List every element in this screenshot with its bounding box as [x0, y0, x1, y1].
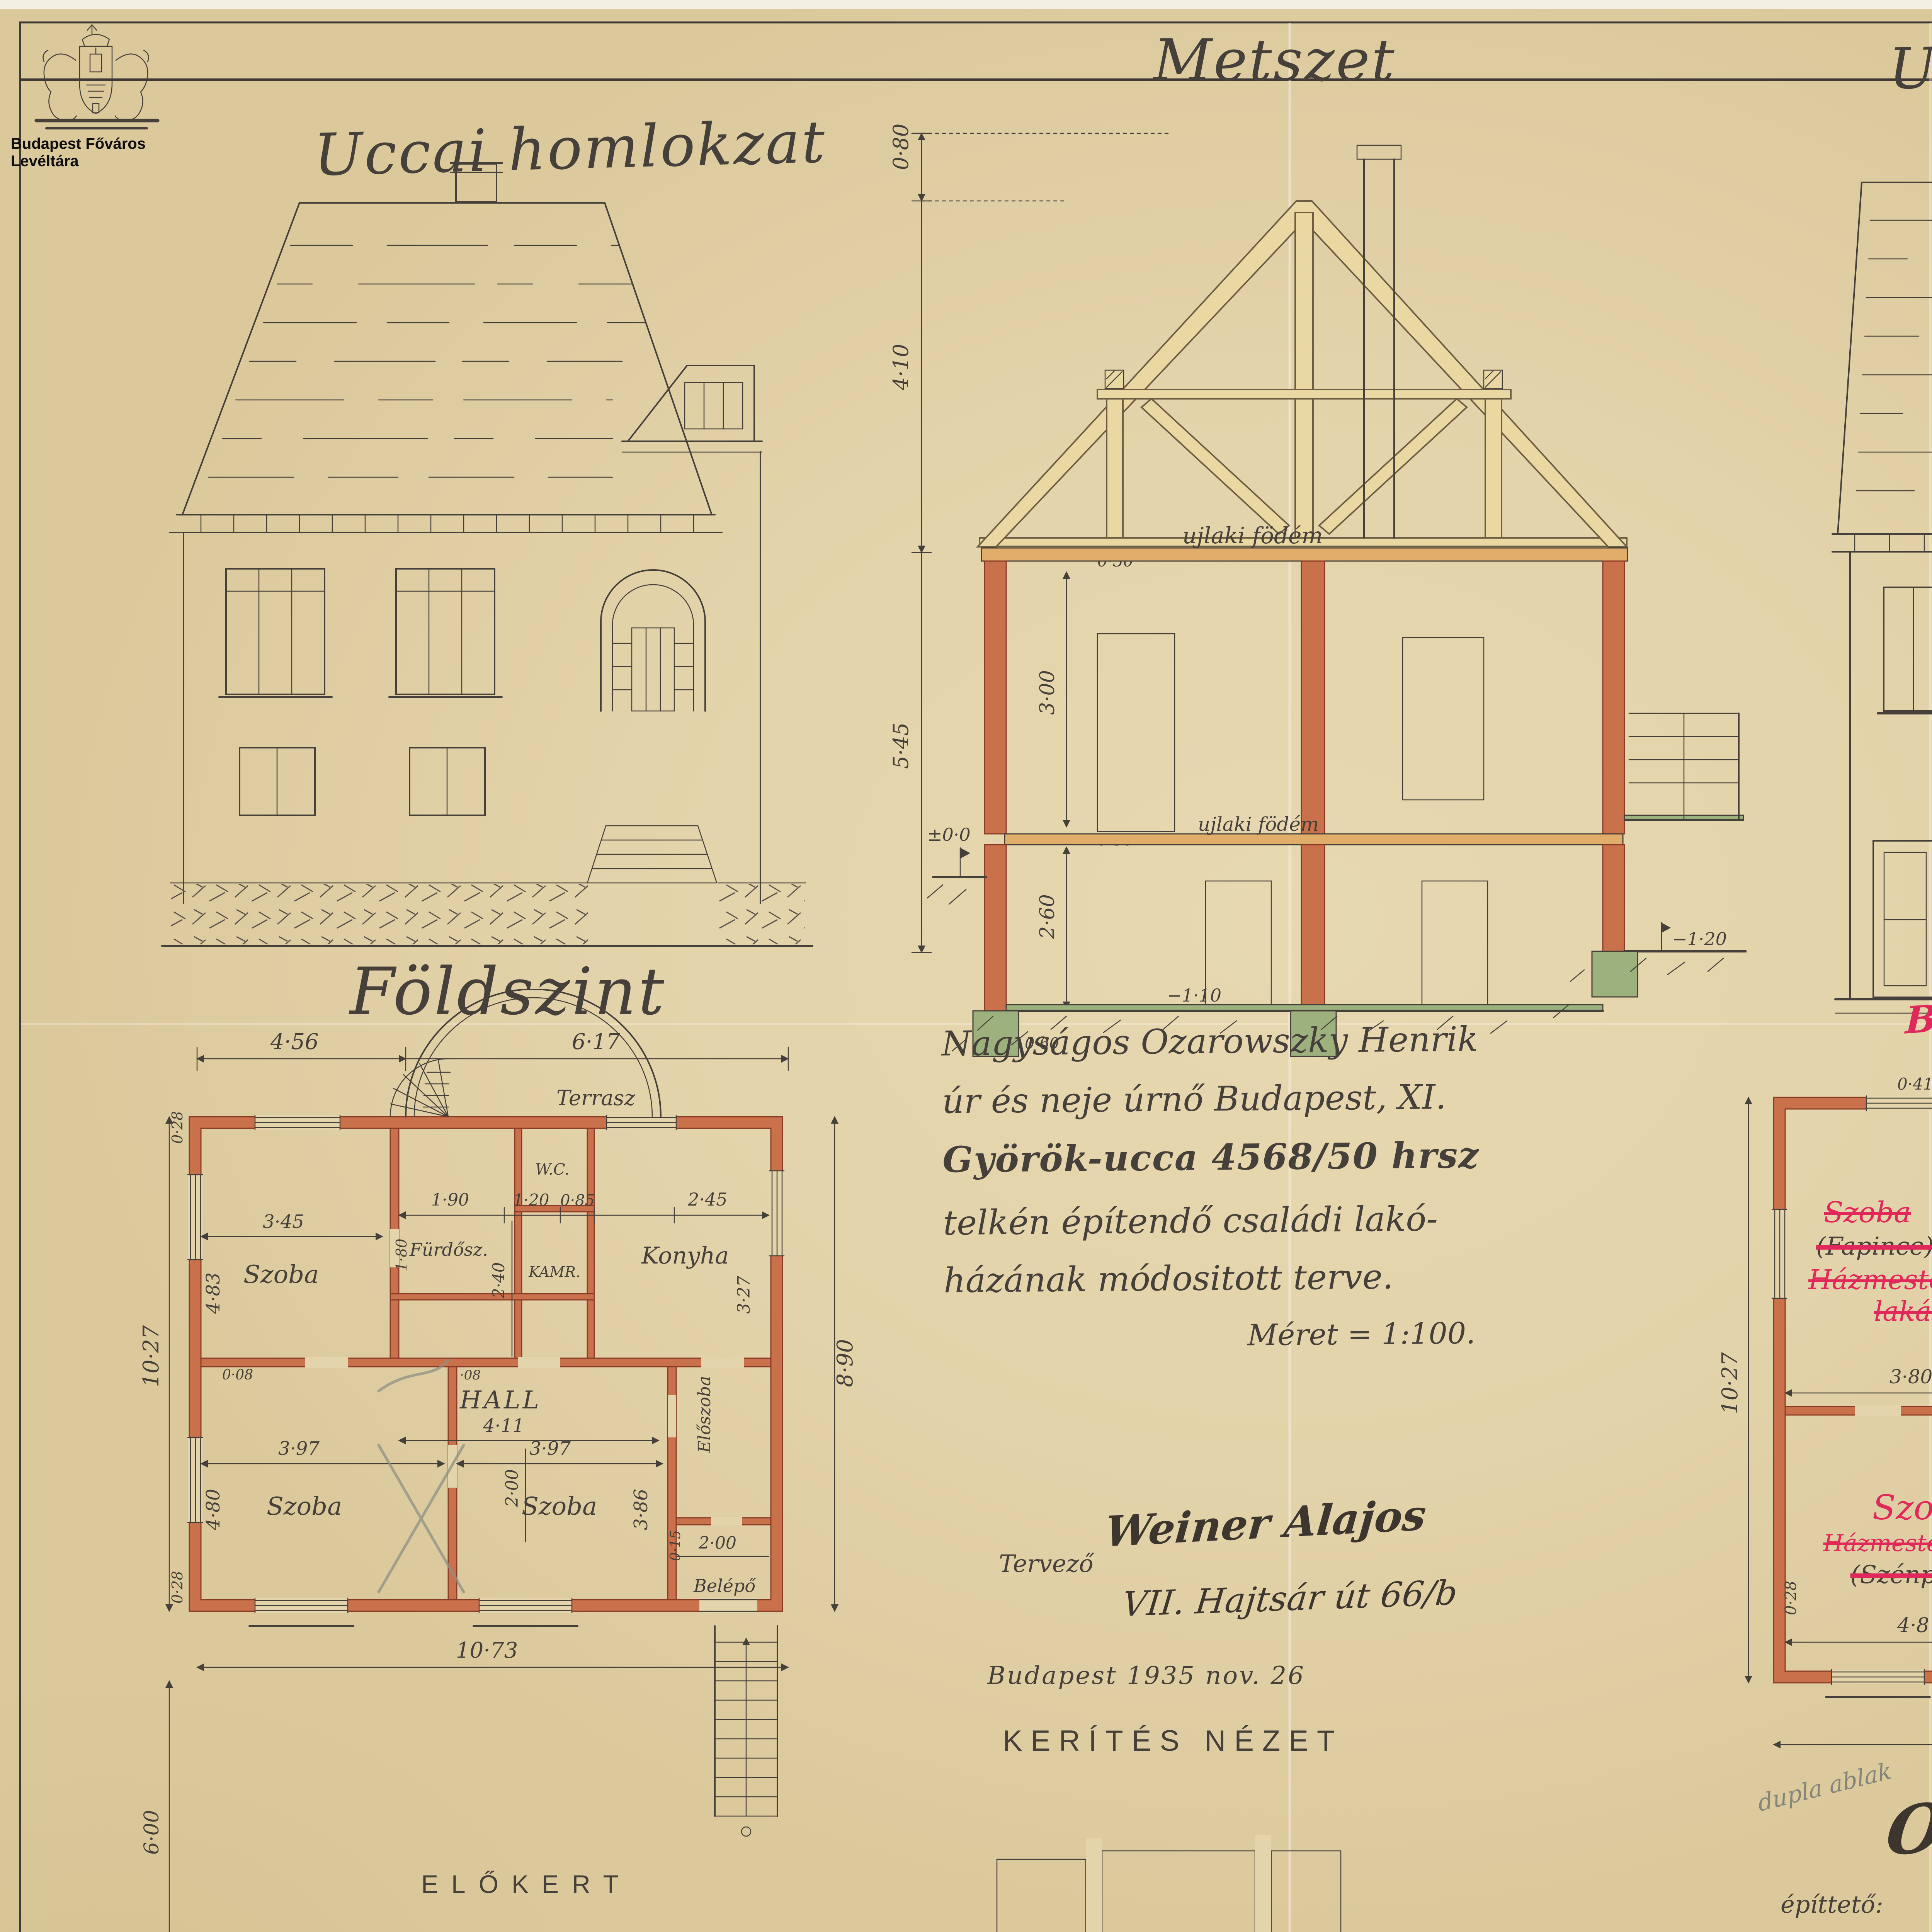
fence-drawing	[958, 1793, 1368, 1932]
street-arched-entry	[587, 570, 717, 883]
room-vestibule: Előszoba	[695, 1376, 714, 1453]
gf-dim-200-entry: 2·00	[698, 1533, 736, 1553]
fence-title: KERÍTÉS NÉZET	[1003, 1724, 1343, 1758]
project-line-4: telkén építendő családi lakó-	[943, 1196, 1778, 1243]
project-scale: Méret = 1:100.	[944, 1313, 1779, 1355]
gf-dim-190: 1·90	[431, 1190, 469, 1210]
gf-dim-028b: 0·28	[169, 1571, 186, 1604]
gf-dim-245: 2·45	[687, 1189, 727, 1210]
street-roof	[170, 163, 722, 532]
room-kitchen: Konyha	[641, 1242, 729, 1269]
room-pantry: KAMR.	[528, 1264, 580, 1281]
bm-dim-380: 3·80	[1889, 1366, 1932, 1388]
architect-date: Budapest 1935 nov. 26	[987, 1662, 1305, 1690]
project-line-2: úr és neje úrnő Budapest, XI.	[942, 1074, 1777, 1121]
basement-room-nw-labels: Szoba (Fapince) Házmester lakás	[1808, 1196, 1932, 1327]
gf-dim-345: 3·45	[263, 1211, 304, 1233]
client-label: építtető:	[1781, 1890, 1883, 1918]
bm-room-sw-szoba: Szoba	[1797, 1488, 1932, 1527]
slab-label-upper: ujlaki födém	[1182, 522, 1323, 549]
gf-dim-240: 2·40	[489, 1262, 508, 1299]
courtyard-walls-windows	[1835, 552, 1932, 1013]
gf-dim-085: 0·85	[560, 1192, 595, 1209]
architect-label: Tervező	[999, 1549, 1094, 1578]
project-text-block: Nagyságos Ozarowszky Henrik úr és neje ú…	[941, 1017, 1779, 1355]
room-hall: HALL	[459, 1386, 541, 1415]
room-nw: Szoba	[243, 1260, 319, 1289]
dim-410: 4·10	[889, 344, 913, 391]
coat-of-arms	[11, 23, 181, 139]
gf-dim-483: 4·83	[202, 1272, 224, 1314]
dim-545: 5·45	[889, 723, 913, 769]
courtyard-roof	[1832, 145, 1932, 552]
gf-dim-top-left: 4·56	[270, 1029, 319, 1054]
label-front-garden: ELŐKERT	[421, 1869, 632, 1899]
bm-dim-48: 4·8	[1897, 1614, 1929, 1637]
dim-080: 0·80	[889, 124, 913, 170]
section-drawing: 0·80 4·10 5·45 3·00 2·60 0·30 0·30	[850, 50, 1747, 1063]
street-foundation	[162, 883, 812, 946]
section-slabs-walls: ujlaki födém ujlaki födém	[981, 522, 1628, 1011]
gf-dim-008: 0·08	[222, 1367, 253, 1383]
bm-dim-041: 0·41	[1897, 1075, 1932, 1094]
gf-dim-120: 1·20	[513, 1190, 549, 1209]
bm-room-sw-szenpince: (Szénpince)	[1797, 1561, 1932, 1589]
bm-room-nw-szoba: Szoba	[1824, 1196, 1932, 1229]
bm-dim-left: 10·27	[1718, 1352, 1743, 1414]
project-line-5: házának módositott terve.	[944, 1253, 1779, 1301]
section-dimensions-left: 0·80 4·10 5·45 3·00 2·60 0·30 0·30	[889, 124, 1171, 1009]
gf-dim-411: 4·11	[483, 1415, 524, 1437]
gf-dim-bottom: 10·73	[456, 1638, 518, 1663]
bm-room-nw-hazmester: Házmester	[1808, 1264, 1932, 1296]
gf-dim-left: 10·27	[139, 1325, 164, 1387]
dim-300: 3·00	[1036, 670, 1059, 715]
fence-panels	[974, 1835, 1349, 1932]
section-exterior-stair	[1624, 713, 1743, 820]
level-m110: −1·10	[1167, 985, 1221, 1006]
basement-room-sw-labels: Szoba Házmester szoba (Szénpince)	[1797, 1488, 1932, 1589]
gf-dim-200-hall: 2·00	[502, 1469, 522, 1507]
level-m120: −1·20	[1672, 929, 1727, 949]
gf-dim-028a: 0·28	[169, 1111, 186, 1144]
level-zero: ±0·0	[927, 824, 971, 845]
gf-dim-480: 4·80	[202, 1489, 224, 1531]
room-wc: W.C.	[535, 1161, 570, 1179]
ground-floor-plan: Terrasz Szoba Fürdősz. W.C. KAMR. Konyha…	[139, 989, 908, 1932]
slab-label-lower: ujlaki födém	[1198, 813, 1319, 835]
gf-entry-stairs	[715, 1626, 777, 1836]
bm-room-sw-hazmester: Házmester szoba	[1797, 1530, 1932, 1557]
drawing-sheet: Budapest Főváros Levéltára Uccai homlokz…	[0, 0, 1932, 1932]
gf-terrace: Terrasz	[390, 989, 661, 1117]
basement-plan: 3·80 2·20 1·20 2·50 4·8 3·30 1·80 10·27 …	[1716, 1043, 1932, 1801]
bm-room-nw-lakas: lakás	[1874, 1296, 1932, 1327]
gf-dim-08: ·08	[460, 1367, 481, 1383]
room-se: Szoba	[522, 1492, 597, 1521]
gf-dim-397b: 3·97	[529, 1438, 571, 1459]
project-line-3: Györök-ucca 4568/50 hrsz	[942, 1132, 1777, 1181]
room-entry: Belépő	[693, 1575, 756, 1596]
title-courtyard-elevation: Udvari homlokzat	[1888, 27, 1932, 102]
project-line-1: Nagyságos Ozarowszky Henrik	[941, 1017, 1776, 1064]
room-bath: Fürdősz.	[409, 1239, 488, 1260]
room-terrace: Terrasz	[556, 1086, 635, 1110]
street-dormer-wing	[622, 366, 762, 452]
bm-room-nw-fapince: (Fapince)	[1816, 1232, 1932, 1261]
gf-dim-garden: 6·00	[140, 1810, 163, 1855]
gf-dim-top-right: 6·17	[572, 1029, 620, 1054]
gf-dim-397a: 3·97	[278, 1438, 320, 1459]
room-sw: Szoba	[267, 1492, 342, 1521]
section-roof-truss	[978, 145, 1627, 547]
gf-dim-right: 8·90	[833, 1339, 858, 1387]
gf-dim-386: 3·86	[630, 1489, 652, 1530]
courtyard-elevation-drawing	[1812, 131, 1932, 1028]
gf-dim-180: 1·80	[393, 1238, 410, 1271]
street-elevation-drawing	[147, 147, 835, 966]
dim-260: 2·60	[1036, 894, 1059, 939]
gf-dim-327: 3·27	[734, 1276, 754, 1314]
